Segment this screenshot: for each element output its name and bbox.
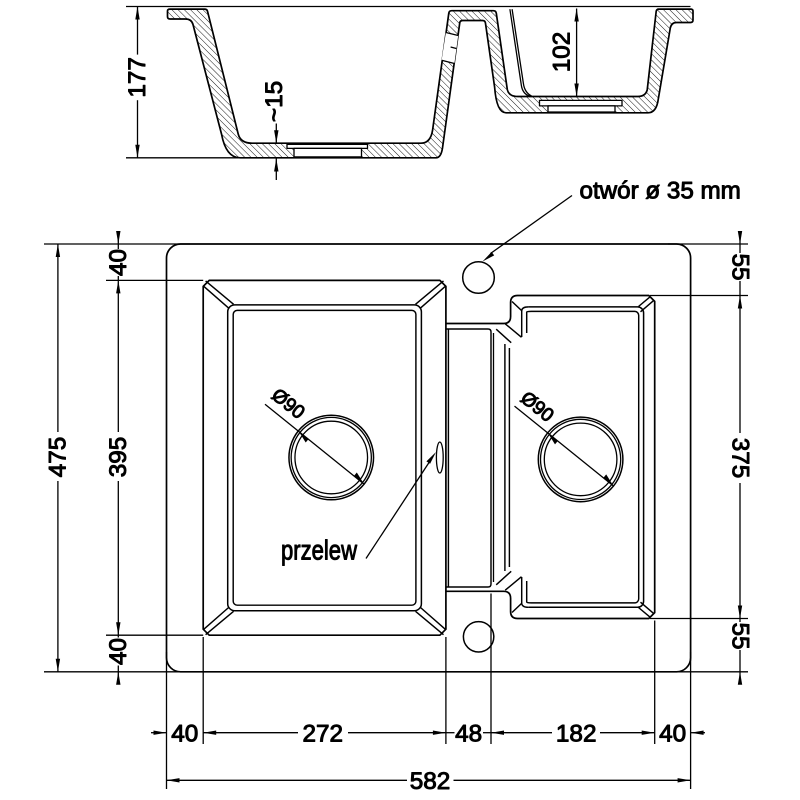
svg-text:395: 395: [105, 437, 132, 478]
svg-text:102: 102: [549, 32, 576, 73]
svg-text:182: 182: [556, 721, 597, 748]
svg-text:przelew: przelew: [281, 535, 357, 566]
svg-text:272: 272: [303, 721, 344, 748]
svg-text:40: 40: [105, 638, 132, 665]
svg-text:~15: ~15: [261, 81, 288, 122]
svg-text:40: 40: [105, 249, 132, 276]
svg-text:582: 582: [410, 768, 451, 795]
svg-text:55: 55: [727, 253, 754, 280]
svg-text:40: 40: [659, 721, 686, 748]
svg-text:otwór ø 35 mm: otwór ø 35 mm: [580, 177, 741, 204]
svg-text:177: 177: [124, 57, 151, 98]
svg-text:375: 375: [727, 438, 754, 479]
svg-text:40: 40: [171, 721, 198, 748]
svg-text:55: 55: [727, 622, 754, 649]
svg-text:48: 48: [455, 721, 482, 748]
svg-text:Ø90: Ø90: [267, 385, 308, 424]
svg-text:475: 475: [44, 437, 71, 478]
svg-text:Ø90: Ø90: [516, 388, 557, 427]
